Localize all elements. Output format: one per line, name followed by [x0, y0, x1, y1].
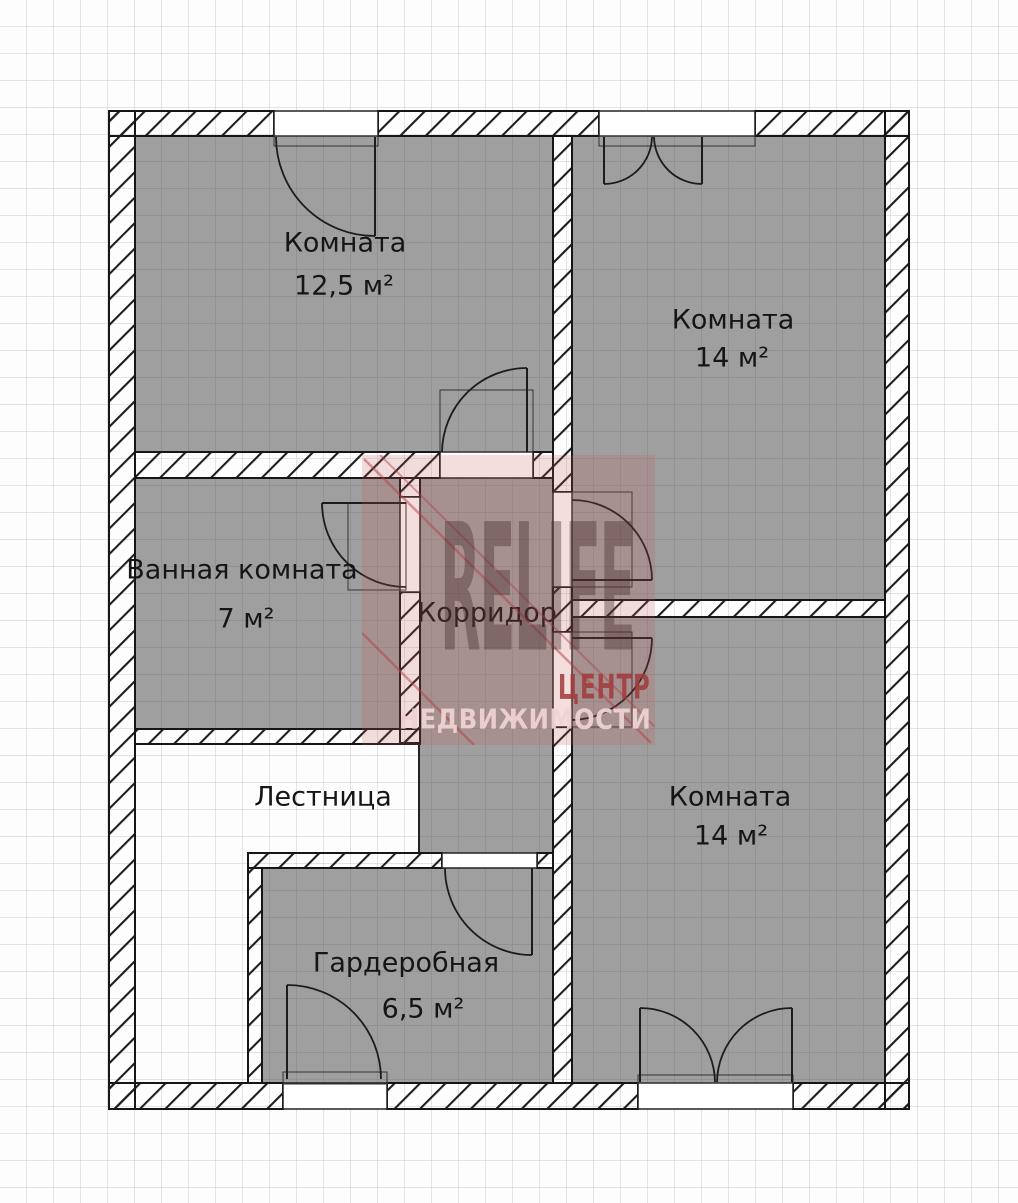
wall-bathroom-bottom	[135, 729, 420, 744]
bathroom-label: Ванная комната	[126, 555, 357, 586]
floorplan-page: Комната 12,5 м² Комната 14 м² Ванная ком…	[0, 0, 1018, 1203]
wall-wardrobe-top-1	[248, 853, 442, 868]
corridor-label: Корридор	[417, 598, 557, 629]
wall-top-segment-2	[378, 111, 599, 136]
wall-under-top-left-room-2	[533, 452, 553, 478]
room-top-right-label: Комната	[672, 305, 795, 336]
opening-top-left-exterior-door	[274, 111, 378, 136]
room-bottom-right-label: Комната	[669, 782, 792, 813]
wall-under-top-left-room-1	[135, 452, 440, 478]
room-top-right-area: 14 м²	[695, 343, 769, 374]
opening-bottom-right-balcony-window	[638, 1083, 793, 1109]
opening-top-right-balcony-window	[599, 111, 755, 136]
wall-wardrobe-left	[248, 868, 262, 1083]
opening-corridor-to-bottom-right	[553, 632, 572, 727]
opening-corridor-to-top-left	[440, 452, 533, 478]
room-bottom-right-area: 14 м²	[694, 821, 768, 852]
wardrobe-area: 6,5 м²	[382, 994, 465, 1025]
wall-bathroom-right-upper	[400, 478, 420, 497]
room-top-left-area: 12,5 м²	[294, 271, 394, 302]
bathroom-area: 7 м²	[218, 604, 275, 635]
wall-between-right-rooms	[572, 600, 885, 617]
stairs-label: Лестница	[254, 782, 392, 813]
wardrobe-label: Гардеробная	[313, 948, 499, 979]
wall-wardrobe-top-2	[537, 853, 553, 868]
corridor-grid	[420, 478, 553, 853]
wall-center-vertical-upper	[553, 136, 572, 492]
wall-bottom-segment-2	[387, 1083, 638, 1109]
opening-corridor-to-top-right	[553, 492, 572, 587]
opening-wardrobe-exterior-door	[283, 1083, 387, 1109]
wall-left	[109, 111, 135, 1109]
room-top-left-label: Комната	[284, 228, 407, 259]
opening-corridor-to-bathroom	[400, 497, 420, 592]
wall-center-vertical-lower	[553, 727, 572, 1083]
wall-right	[885, 111, 909, 1109]
opening-corridor-to-wardrobe	[442, 853, 537, 868]
